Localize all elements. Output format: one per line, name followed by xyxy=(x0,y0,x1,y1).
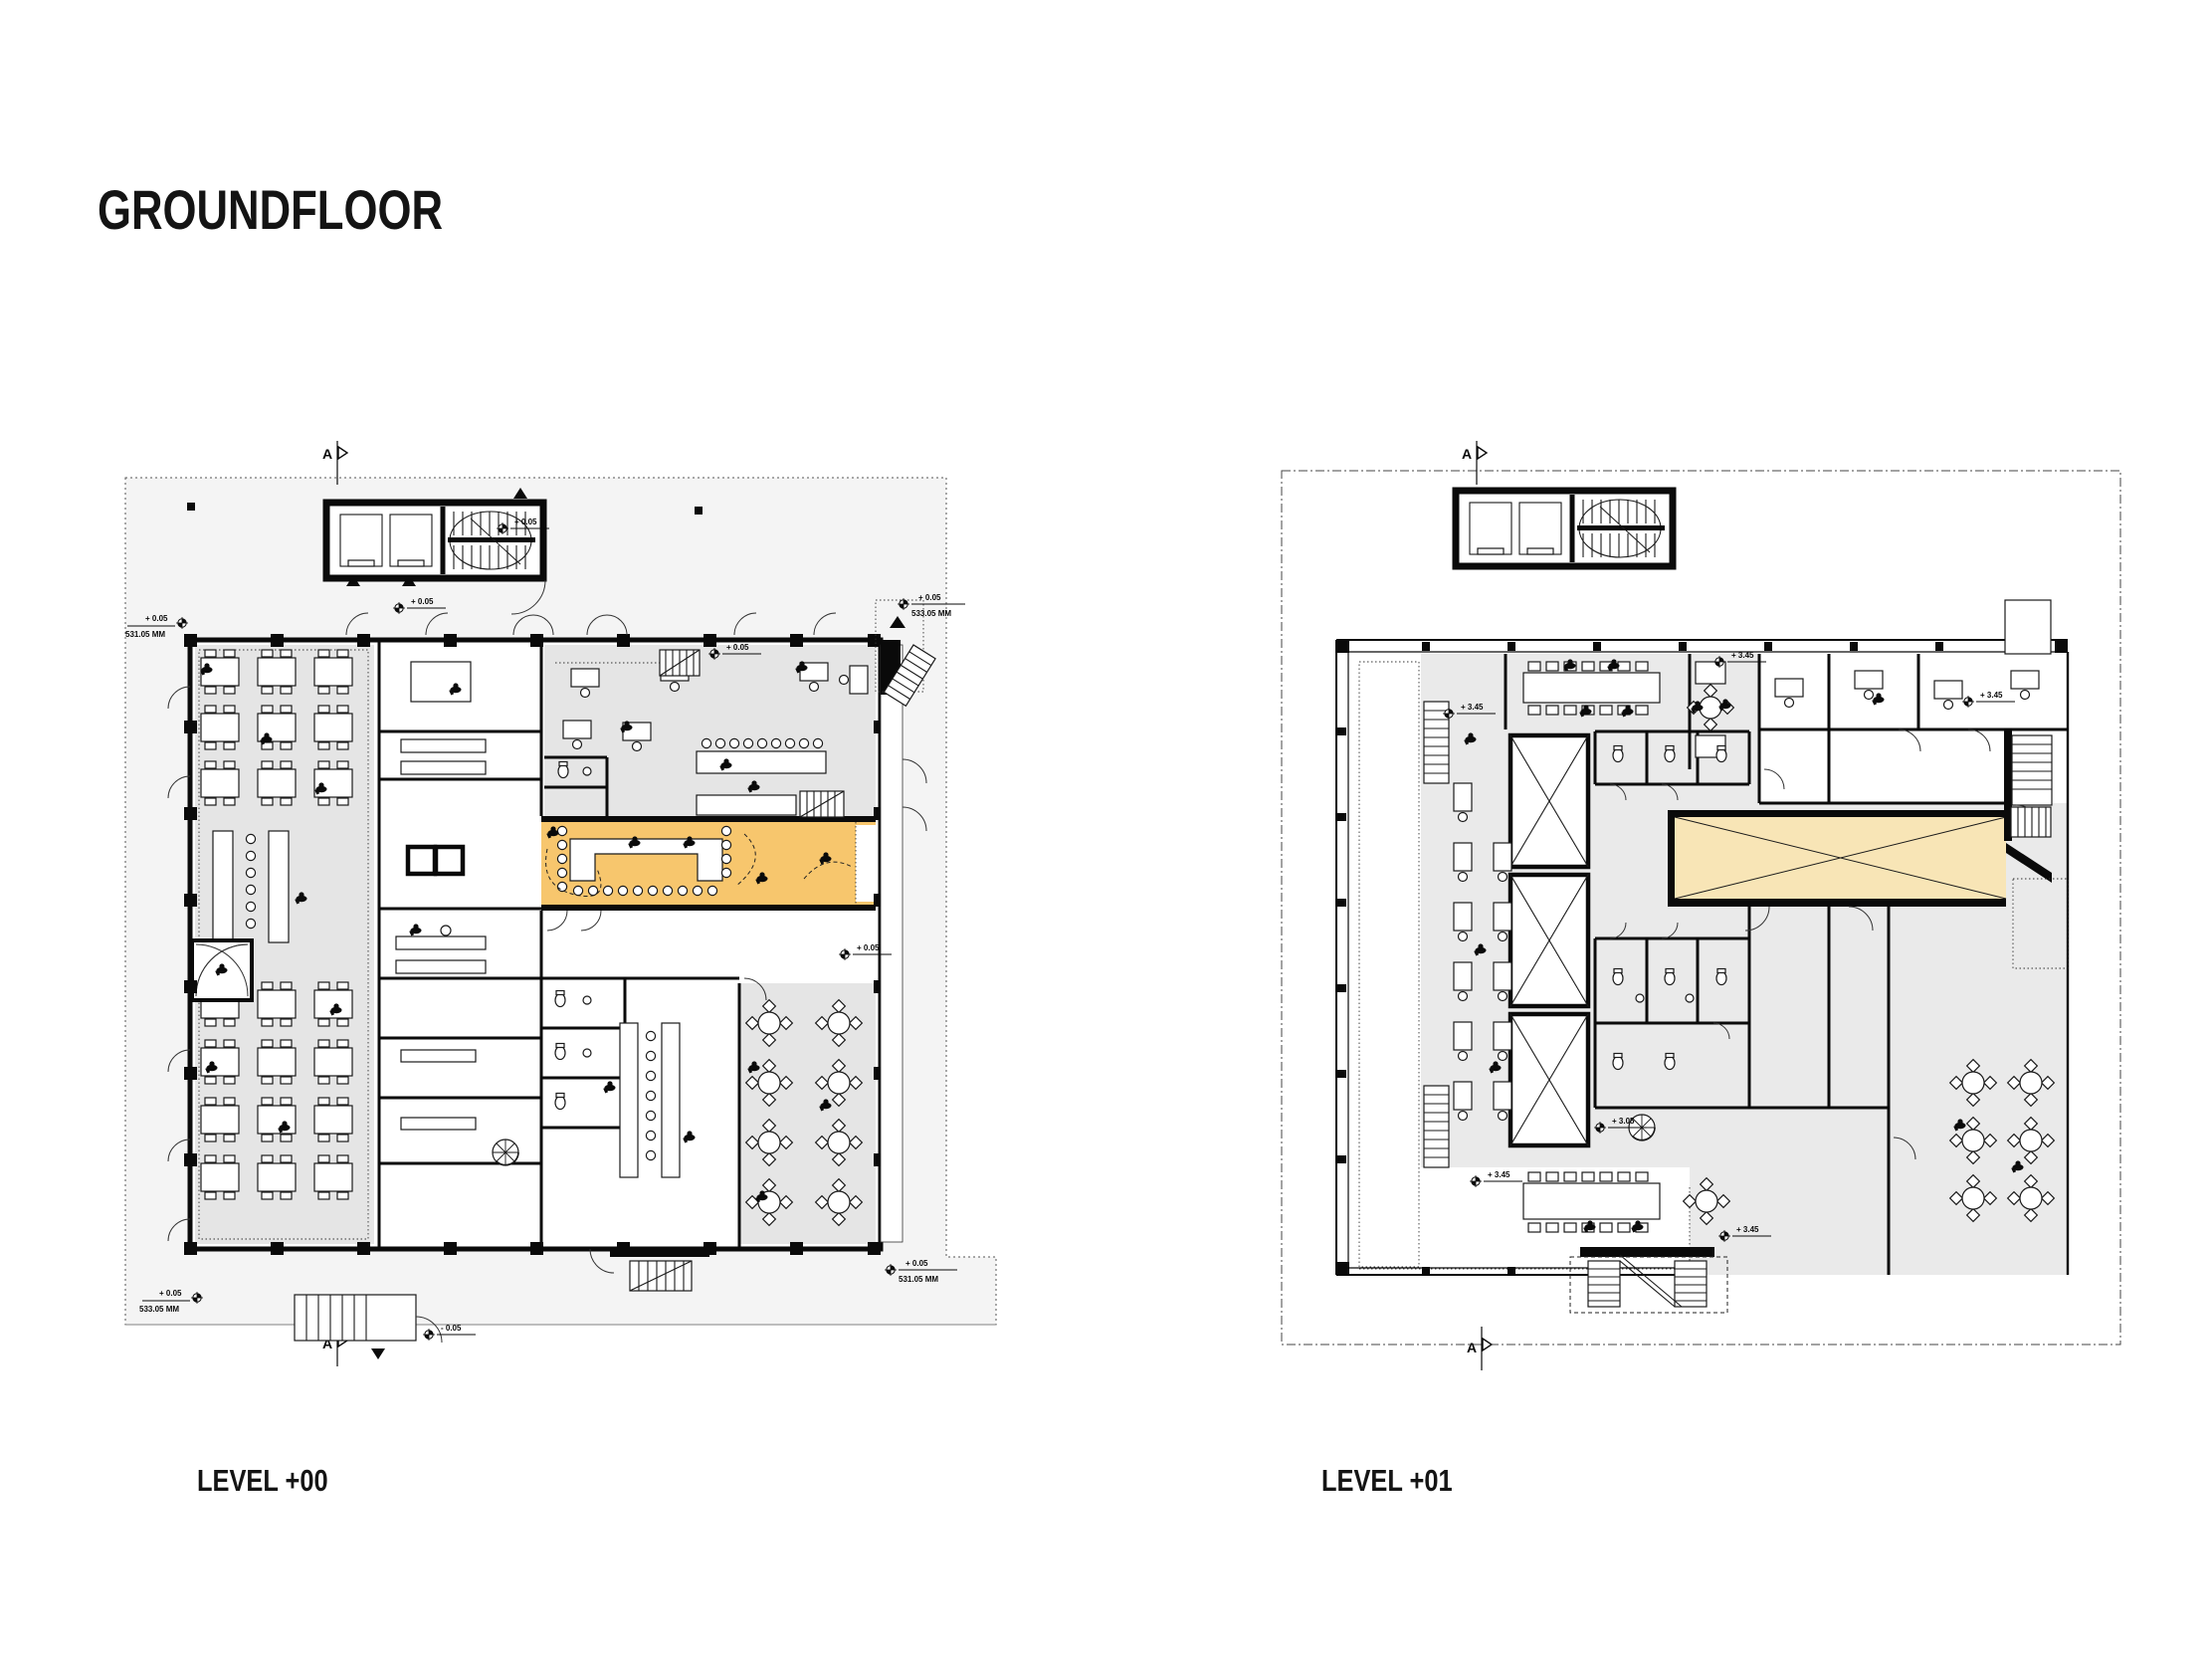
svg-text:A: A xyxy=(1467,1340,1477,1355)
svg-text:+ 0.05: + 0.05 xyxy=(726,643,749,652)
svg-text:+ 0.05: + 0.05 xyxy=(905,1259,928,1268)
svg-text:+ 3.45: + 3.45 xyxy=(1461,703,1484,712)
plan-label-level-00: LEVEL +00 xyxy=(197,1463,328,1499)
svg-text:+ 0.05: + 0.05 xyxy=(411,597,434,606)
stair-mid-right xyxy=(800,791,844,817)
svg-text:+ 0.05: + 0.05 xyxy=(159,1289,182,1298)
stair-core xyxy=(1456,491,1673,566)
service-window xyxy=(436,847,463,874)
stair-right-of-void xyxy=(2011,807,2051,837)
svg-text:+ 3.45: + 3.45 xyxy=(1488,1170,1510,1179)
svg-text:A: A xyxy=(1462,446,1472,462)
spiral-stair xyxy=(493,1140,518,1165)
svg-text:A: A xyxy=(322,446,332,462)
service-window xyxy=(408,847,435,874)
svg-text:+ 0.05: + 0.05 xyxy=(857,943,880,952)
svg-text:531.05 MM: 531.05 MM xyxy=(125,630,165,639)
shafts xyxy=(1510,735,1588,1145)
svg-text:+ 3.45: + 3.45 xyxy=(1980,691,2003,700)
site-point xyxy=(187,503,195,511)
plan-label-level-01: LEVEL +01 xyxy=(1321,1463,1453,1499)
building-level-00 xyxy=(168,600,935,1359)
svg-text:531.05 MM: 531.05 MM xyxy=(899,1275,938,1284)
svg-text:+ 0.05: + 0.05 xyxy=(514,518,537,526)
svg-text:533.05 MM: 533.05 MM xyxy=(911,609,951,618)
highlight-zone-level-00 xyxy=(541,816,876,911)
svg-text:+ 3.05: + 3.05 xyxy=(1612,1117,1635,1126)
stair-left-lower xyxy=(1424,1086,1449,1167)
highlight-void-level-01 xyxy=(1668,810,2006,907)
counter-stools xyxy=(702,738,822,747)
building-level-01 xyxy=(1336,600,2068,1313)
svg-text:- 0.05: - 0.05 xyxy=(441,1324,462,1333)
long-counter xyxy=(697,751,826,773)
stair-core xyxy=(326,503,543,578)
svg-text:533.05 MM: 533.05 MM xyxy=(139,1305,179,1314)
svg-text:+ 0.05: + 0.05 xyxy=(918,593,941,602)
site-point xyxy=(695,507,703,515)
floor-plan-level-00: A A xyxy=(117,441,1013,1381)
svg-text:+ 0.05: + 0.05 xyxy=(145,614,168,623)
svg-text:+ 3.45: + 3.45 xyxy=(1736,1225,1759,1234)
page-title: GROUNDFLOOR xyxy=(98,177,443,242)
svg-text:+ 3.45: + 3.45 xyxy=(1731,651,1754,660)
entrance-vestibule xyxy=(192,940,252,1000)
floor-plan-level-01: A A xyxy=(1272,441,2157,1371)
